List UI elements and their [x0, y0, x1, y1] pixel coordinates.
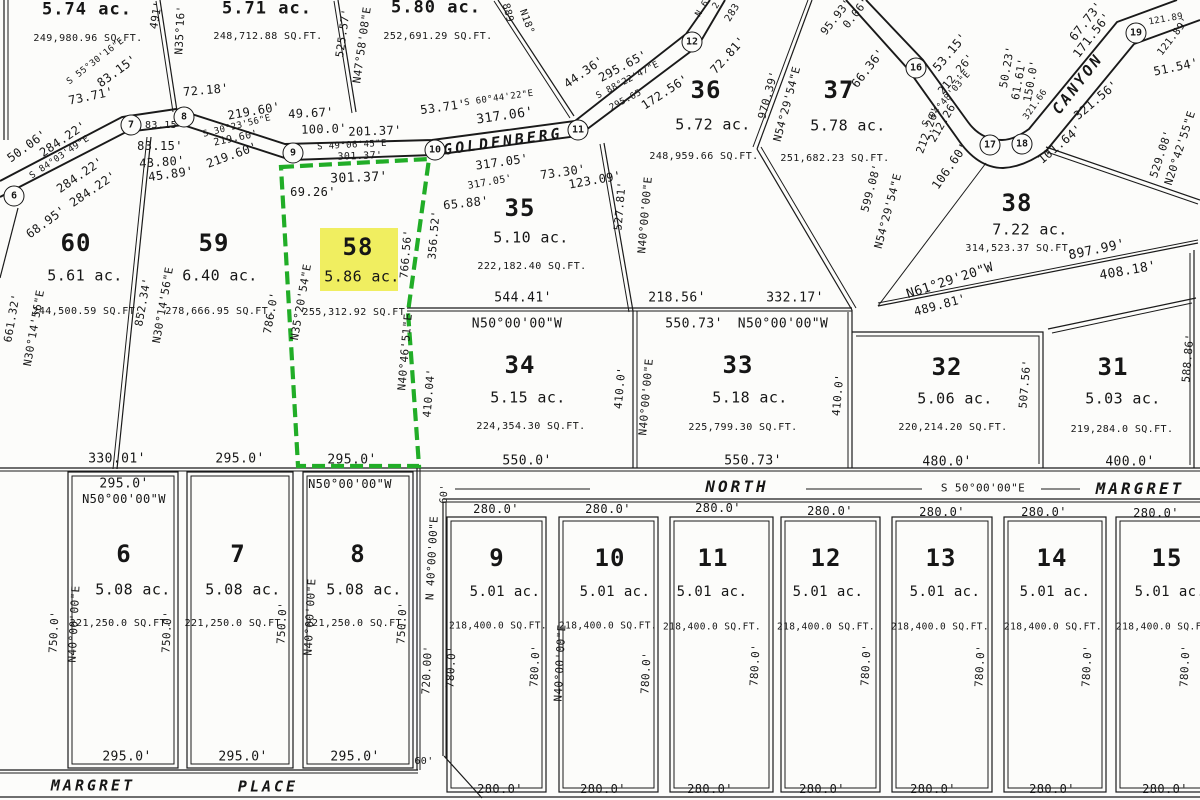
lot-area-label: 221,250.0 SQ.FT.: [185, 619, 288, 629]
curve-point-marker: 6: [4, 186, 25, 207]
lot-number-label: 38: [1002, 191, 1033, 215]
dimension-label: 280.0': [1133, 507, 1179, 519]
lot-area-label: 255,312.92 SQ.FT.: [302, 308, 411, 318]
dimension-label: 750.0': [275, 602, 288, 645]
dimension-label: N50°00'00"W: [308, 478, 392, 490]
dimension-label: 218.56': [648, 292, 706, 305]
lot-number-label: 13: [926, 546, 957, 570]
lot-area-label: 244,500.59 SQ.FT.: [32, 307, 141, 317]
lot-acreage-label: 5.08 ac.: [205, 583, 280, 598]
dimension-label: 550.0': [502, 455, 551, 468]
dimension-label: N50°00'00"W: [738, 318, 829, 331]
dimension-label: 550.73': [665, 318, 723, 331]
dimension-label: S 50°00'00"E: [941, 483, 1025, 494]
dimension-label: 60': [414, 757, 433, 767]
lot-acreage-label: 5.06 ac.: [917, 392, 992, 407]
lot-number-label: 36: [691, 78, 722, 102]
lot-acreage-label: 5.71 ac.: [222, 1, 312, 18]
dimension-label: 750.0': [160, 611, 173, 654]
lot-acreage-label: 6.40 ac.: [182, 269, 257, 284]
dimension-label: 780.0': [1178, 645, 1191, 688]
dimension-label: 280.0': [695, 502, 741, 514]
lot-acreage-label: 5.61 ac.: [47, 269, 122, 284]
lot-acreage-label: 5.18 ac.: [712, 391, 787, 406]
lot-acreage-label: 5.03 ac.: [1085, 392, 1160, 407]
lot-acreage-label: 5.01 ac.: [1135, 585, 1200, 599]
dimension-label: 280.0': [580, 783, 626, 795]
lot-number-label: 12: [811, 546, 842, 570]
lot-number-label: 60: [61, 231, 92, 255]
dimension-label: 750.0': [47, 611, 60, 654]
dimension-label: 280.0': [687, 783, 733, 795]
dimension-label: N35°16': [173, 5, 187, 55]
dimension-label: 410.0': [613, 367, 628, 410]
dimension-label: 480.0': [922, 456, 971, 469]
lot-acreage-label: 5.01 ac.: [580, 585, 651, 599]
lot-number-label: 58: [343, 235, 374, 259]
lot-acreage-label: 5.01 ac.: [910, 585, 981, 599]
curve-point-marker: 16: [906, 58, 927, 79]
dimension-label: 550.73': [724, 455, 782, 468]
lot-area-label: 224,354.30 SQ.FT.: [476, 422, 585, 432]
lot-acreage-label: 5.74 ac.: [42, 2, 132, 19]
lot-area-label: 218,400.0 SQ.FT.: [777, 622, 875, 632]
street-name-label: NORTH: [705, 479, 768, 495]
dimension-label: 280.0': [807, 505, 853, 517]
dimension-label: 280.0': [585, 503, 631, 515]
lot-area-label: 252,691.29 SQ.FT.: [383, 32, 492, 42]
dimension-label: 295.0': [99, 478, 148, 491]
dimension-label: 295.0': [327, 454, 376, 467]
lot-number-label: 11: [698, 546, 729, 570]
lot-acreage-label: 5.15 ac.: [490, 391, 565, 406]
dimension-label: 330.01': [88, 453, 146, 466]
dimension-label: 780.0': [639, 652, 652, 695]
lot-area-label: 218,400.0 SQ.FT.: [891, 622, 989, 632]
lot-area-label: 248,712.88 SQ.FT.: [213, 32, 322, 42]
lot-number-label: 33: [723, 353, 754, 377]
dimension-label: 60': [440, 484, 451, 504]
lot-area-label: 218,400.0 SQ.FT.: [1004, 622, 1102, 632]
dimension-label: 544.41': [494, 292, 552, 305]
dimension-label: 100.0': [301, 122, 347, 136]
dimension-label: 720.00': [420, 645, 434, 695]
street-name-label: PLACE: [238, 780, 298, 795]
dimension-label: 83.15: [145, 121, 177, 131]
lot-area-label: 218,400.0 SQ.FT.: [559, 621, 657, 631]
curve-point-marker: 9: [283, 143, 304, 164]
dimension-label: 72.18': [183, 82, 230, 98]
lot-acreage-label: 5.01 ac.: [677, 585, 748, 599]
dimension-label: 332.17': [766, 292, 824, 305]
lot-number-label: 34: [505, 353, 536, 377]
street-name-label: MARGRET: [51, 779, 135, 794]
curve-point-marker: 18: [1012, 134, 1033, 155]
lot-area-label: 218,400.0 SQ.FT.: [663, 622, 761, 632]
lot-area-label: 249,980.96 SQ.FT.: [33, 34, 142, 44]
lot-acreage-label: 5.80 ac.: [391, 0, 481, 17]
lot-area-label: 225,799.30 SQ.FT.: [688, 423, 797, 433]
lot-number-label: 8: [350, 542, 365, 566]
dimension-label: 280.0': [1142, 783, 1188, 795]
dimension-label: 280.0': [1029, 783, 1075, 795]
curve-point-marker: 10: [425, 140, 446, 161]
lot-number-label: 31: [1098, 355, 1129, 379]
dimension-label: 301.37': [330, 170, 388, 185]
dimension-label: 301.37': [337, 151, 382, 163]
dimension-label: 295.0': [215, 453, 264, 466]
dimension-label: 201.37': [348, 124, 402, 138]
dimension-label: 280.0': [473, 503, 519, 515]
lot-number-label: 35: [505, 196, 536, 220]
dimension-label: 83.15': [137, 140, 183, 152]
dimension-label: 280.0': [799, 783, 845, 795]
lot-acreage-label: 5.01 ac.: [470, 585, 541, 599]
dimension-label: 780.0': [973, 645, 986, 688]
dimension-label: 280.0': [919, 506, 965, 518]
lot-number-label: 59: [199, 231, 230, 255]
curve-point-marker: 12: [682, 32, 703, 53]
lot-area-label: 221,250.0 SQ.FT.: [70, 619, 173, 629]
lot-acreage-label: 5.08 ac.: [95, 583, 170, 598]
lot-number-label: 7: [230, 542, 245, 566]
dimension-label: 780.0': [859, 644, 872, 687]
lot-number-label: 15: [1152, 546, 1183, 570]
dimension-label: N50°00'00"W: [472, 318, 563, 331]
lot-number-label: 32: [932, 355, 963, 379]
lot-area-label: 314,523.37 SQ.FT.: [965, 244, 1074, 254]
dimension-label: 780.0': [1080, 645, 1093, 688]
lot-acreage-label: 5.01 ac.: [1020, 585, 1091, 599]
lot-acreage-label: 5.86 ac.: [324, 270, 399, 285]
lot-number-label: 9: [489, 546, 504, 570]
lot-acreage-label: 5.08 ac.: [326, 583, 401, 598]
dimension-label: 280.0': [910, 783, 956, 795]
lot-acreage-label: 5.72 ac.: [675, 118, 750, 133]
dimension-label: 410.0': [831, 374, 846, 417]
lot-acreage-label: 5.10 ac.: [493, 231, 568, 246]
lot-area-label: 278,666.95 SQ.FT.: [165, 307, 274, 317]
curve-point-marker: 19: [1126, 23, 1147, 44]
dimension-label: N50°00'00"W: [82, 493, 166, 505]
lot-area-label: 218,400.0 SQ.FT.: [1116, 622, 1200, 632]
lot-area-label: 219,284.0 SQ.FT.: [1071, 425, 1174, 435]
dimension-label: 295.0': [218, 751, 267, 764]
lot-area-label: 222,182.40 SQ.FT.: [477, 262, 586, 272]
dimension-label: 780.0': [748, 644, 761, 687]
dimension-label: 280.0': [1021, 506, 1067, 518]
dimension-label: 780.0': [528, 645, 541, 688]
lot-area-label: 248,959.66 SQ.FT.: [649, 152, 758, 162]
street-name-label: MARGRET: [1096, 481, 1184, 497]
curve-point-marker: 7: [121, 115, 142, 136]
dimension-label: 280.0': [477, 783, 523, 795]
lot-acreage-label: 5.01 ac.: [793, 585, 864, 599]
dimension-label: 780.0': [444, 646, 457, 689]
curve-point-marker: 17: [980, 135, 1001, 156]
plat-map: 5.74 ac.249,980.96 SQ.FT.491'N35°16'5.71…: [0, 0, 1200, 800]
dimension-label: 69.26': [290, 186, 336, 198]
lot-number-label: 14: [1037, 546, 1068, 570]
dimension-label: 295.0': [330, 751, 379, 764]
lot-area-label: 221,250.0 SQ.FT.: [306, 619, 409, 629]
lot-acreage-label: 7.22 ac.: [992, 223, 1067, 238]
lot-area-label: 220,214.20 SQ.FT.: [898, 423, 1007, 433]
lot-acreage-label: 5.78 ac.: [810, 119, 885, 134]
curve-point-marker: 8: [174, 107, 195, 128]
dimension-label: 49.67': [288, 106, 334, 120]
lot-number-label: 6: [116, 542, 131, 566]
lot-number-label: 10: [595, 546, 626, 570]
curve-point-marker: 11: [568, 120, 589, 141]
dimension-label: 400.0': [1105, 456, 1154, 469]
lot-area-label: 218,400.0 SQ.FT.: [449, 621, 547, 631]
dimension-label: 750.0': [395, 602, 408, 645]
dimension-label: 295.0': [102, 751, 151, 764]
